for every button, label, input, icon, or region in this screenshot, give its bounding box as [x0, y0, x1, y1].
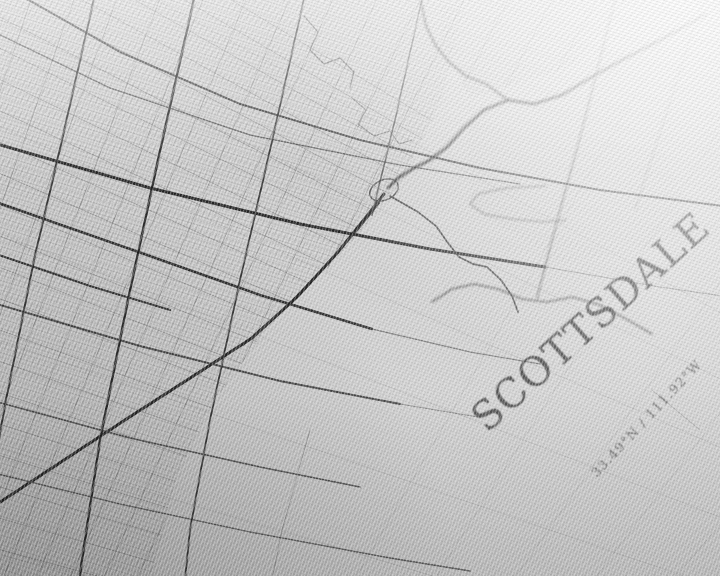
scottsdale-map-art: SCOTTSDALE 33.49°N / 111.92°W [0, 0, 720, 576]
canvas-print-photo: SCOTTSDALE 33.49°N / 111.92°W [0, 0, 720, 576]
bottom-shadow [0, 0, 720, 576]
